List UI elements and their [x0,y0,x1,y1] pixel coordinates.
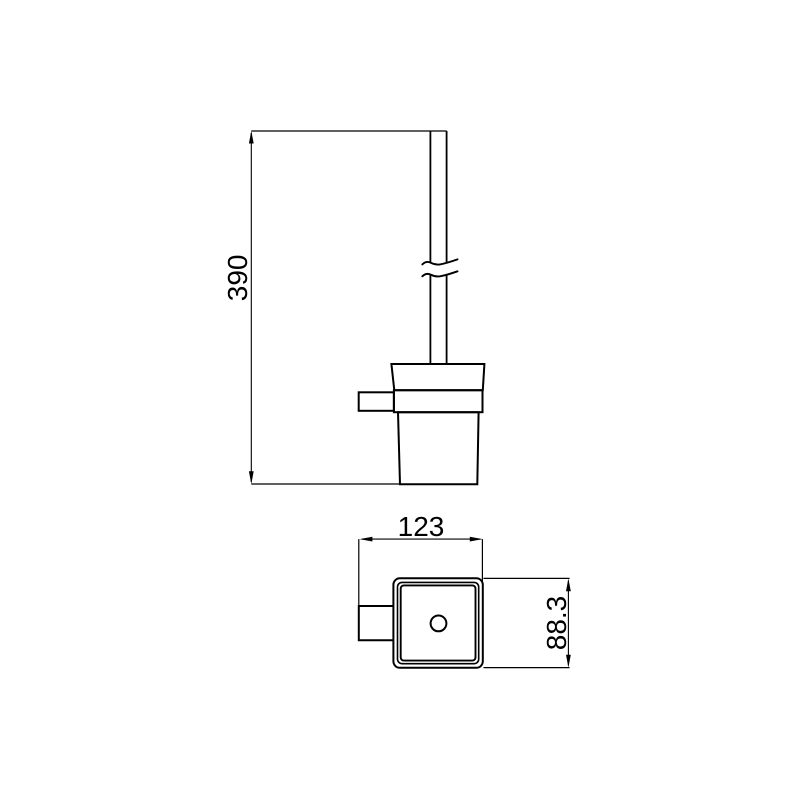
svg-text:123: 123 [398,511,445,542]
svg-text:390: 390 [222,255,253,302]
svg-text:88.3: 88.3 [541,596,572,651]
